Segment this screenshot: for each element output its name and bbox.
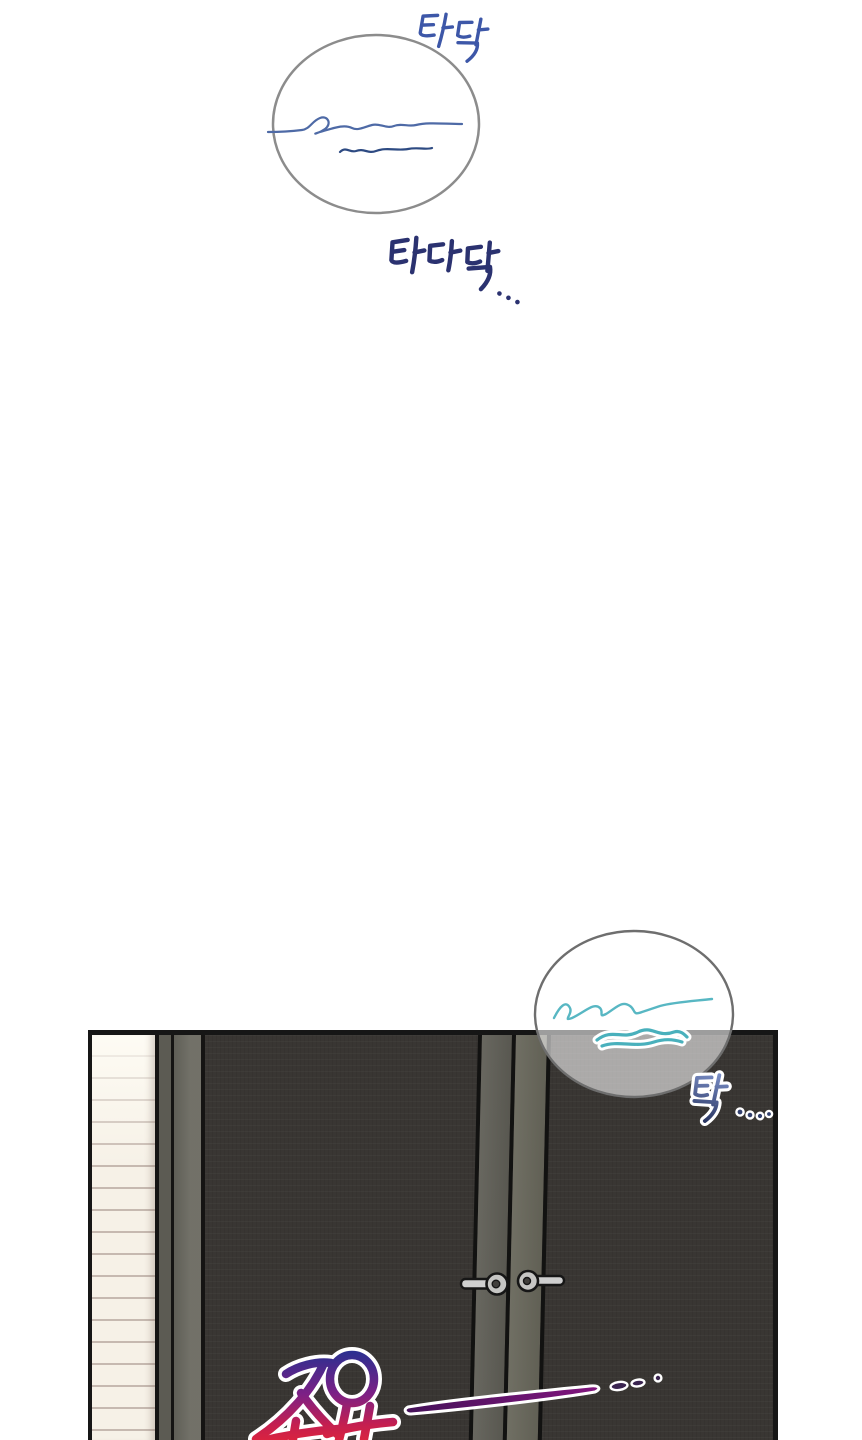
striped-wall-strip — [92, 1035, 155, 1440]
door-frame-strip-narrow — [159, 1035, 171, 1440]
teal-scribble-line — [554, 999, 712, 1019]
comic-panel — [88, 1030, 778, 1440]
frame-gap-line — [201, 1035, 205, 1440]
webtoon-page — [0, 0, 862, 1440]
blue-scribble-line — [268, 117, 462, 133]
sfx-tadak-text — [415, 6, 489, 64]
navy-scribble-line — [340, 148, 432, 152]
top-thought-bubble — [268, 35, 479, 213]
sfx-tadadak-text — [387, 231, 527, 305]
center-door-stiles — [469, 1035, 551, 1440]
door-frame-strip-wide — [174, 1035, 201, 1440]
